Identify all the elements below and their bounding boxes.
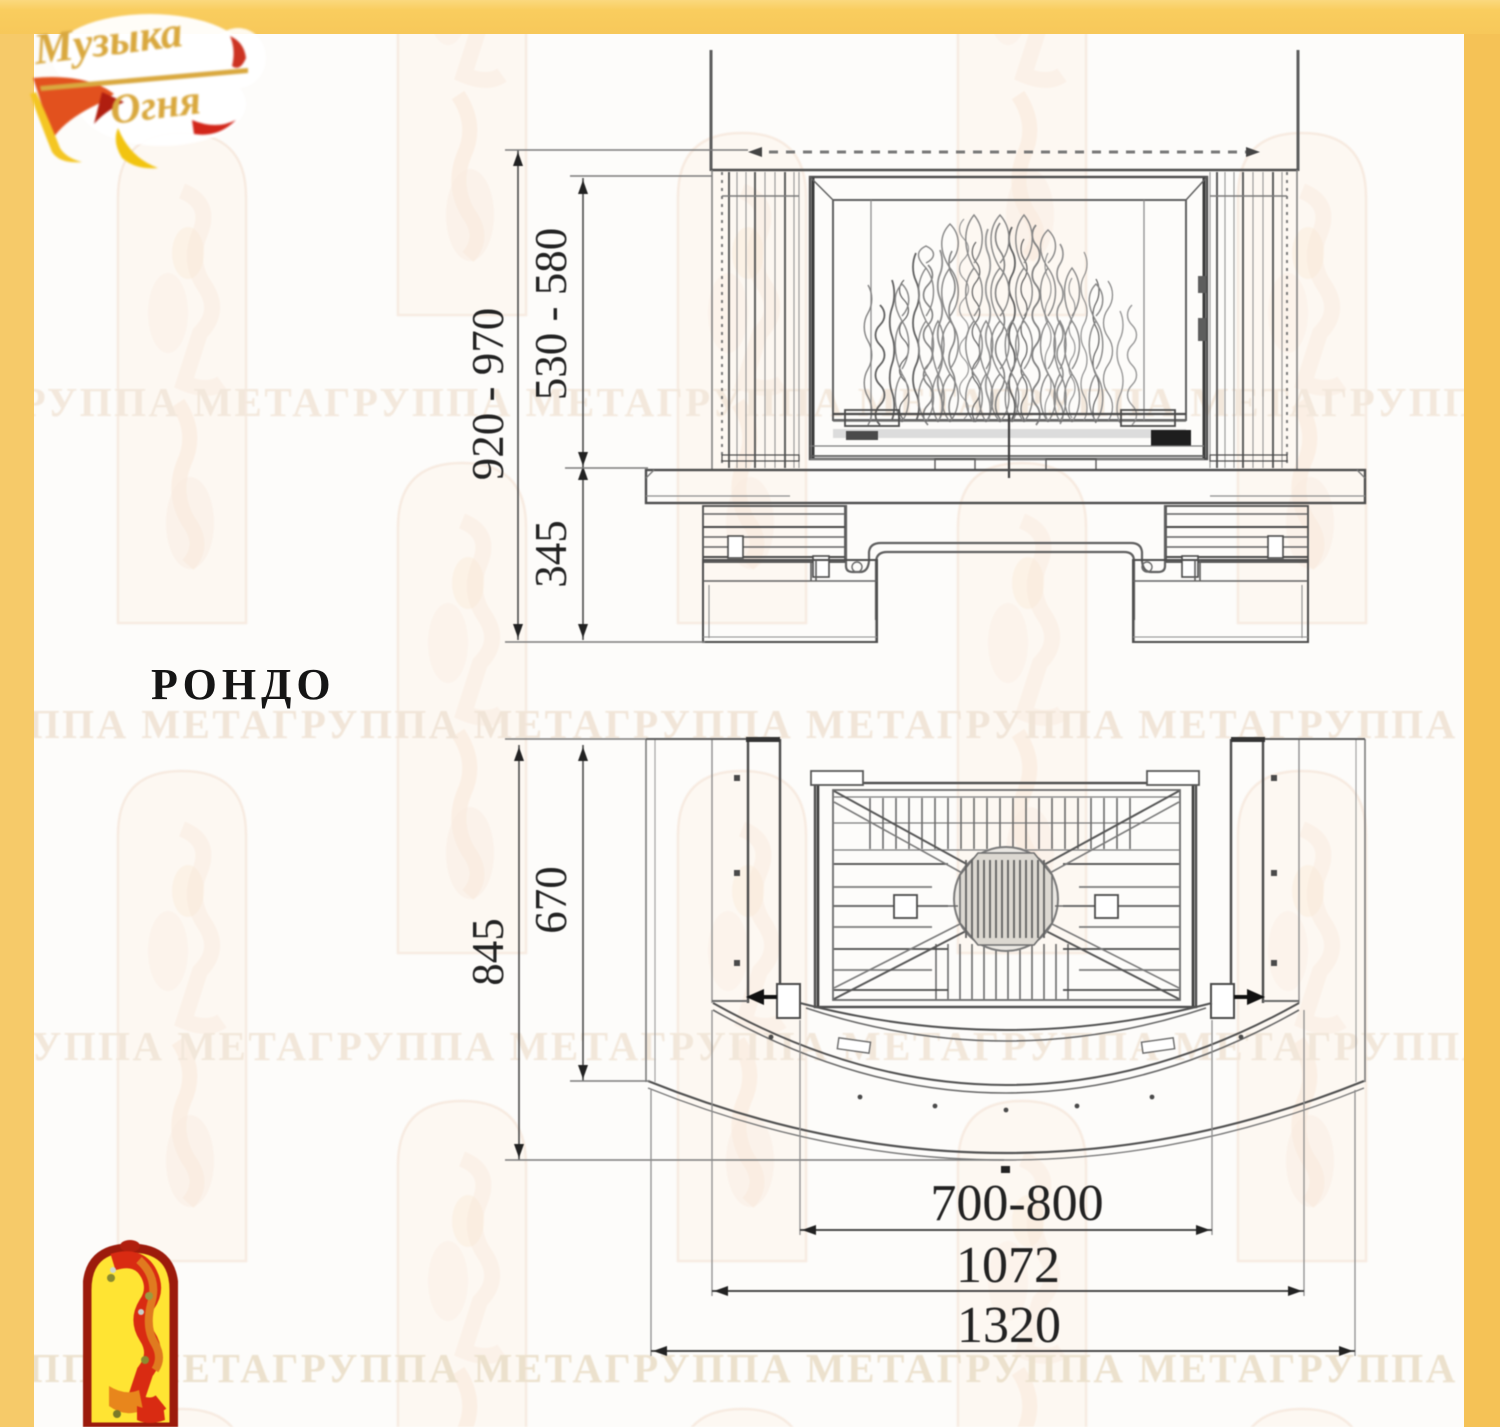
svg-text:670: 670 <box>526 866 576 934</box>
svg-text:845: 845 <box>463 918 513 986</box>
svg-text:1320: 1320 <box>957 1297 1061 1354</box>
svg-text:530 - 580: 530 - 580 <box>526 228 576 401</box>
svg-text:920 - 970: 920 - 970 <box>463 308 513 481</box>
svg-text:1072: 1072 <box>956 1237 1060 1294</box>
svg-text:345: 345 <box>526 520 576 588</box>
svg-text:700-800: 700-800 <box>930 1175 1103 1232</box>
